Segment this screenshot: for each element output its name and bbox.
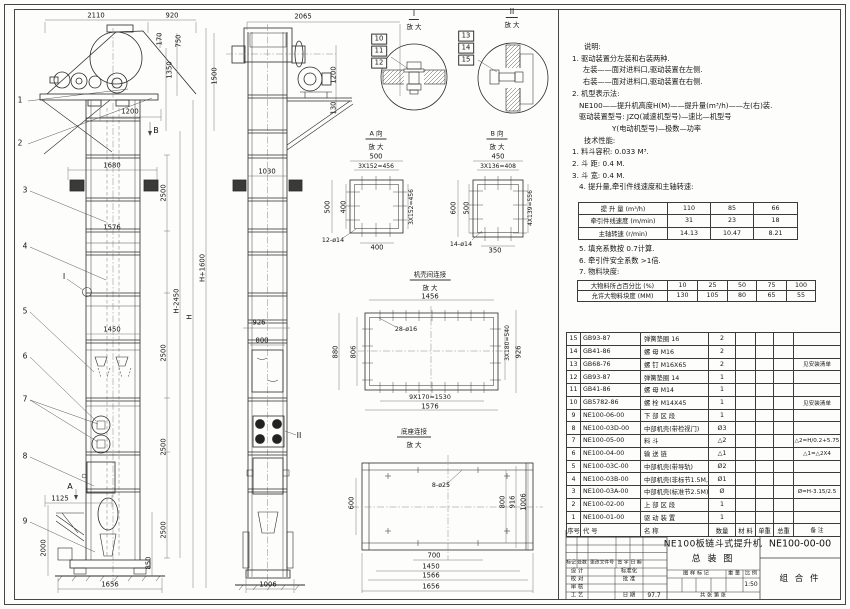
dimension-label: 标记 <box>566 562 576 567</box>
dimension-label: 1125 <box>51 496 68 503</box>
dimension-label: 880 <box>333 346 340 359</box>
drawing-title: NE100板链斗式提升机 <box>664 537 763 550</box>
table-row: 允许大物料块度 (MM)130105806555 <box>578 291 816 301</box>
section-b <box>469 176 527 241</box>
dimension-label: B <box>153 127 159 135</box>
assembly-type-label: 组 合 件 <box>780 572 821 584</box>
table-row: 5NE100-03C-00中部机壳(带导轨)Ø2 <box>567 460 841 473</box>
note-line: 右装——面对进料口,驱动装置在右侧. <box>566 76 846 88</box>
dimension-label: 806 <box>351 346 358 359</box>
balloon-5: 5 <box>23 307 28 315</box>
table-row: 6NE100-04-00输 送 链△1△1=△2X4 <box>567 447 841 460</box>
dimension-label: 放 大 <box>406 442 421 449</box>
dimension-label: 审 核 <box>571 585 584 590</box>
dimension-label: 12-ø14 <box>322 238 344 244</box>
dimension-label: 600 <box>349 497 356 510</box>
balloon-8: 8 <box>23 452 28 460</box>
note-line: Y(电动机型号)—极数—功率 <box>566 123 846 135</box>
drawing-sheet: 2110920170750135015001200B168025001576H+… <box>0 0 850 609</box>
dimension-label: 1656 <box>101 582 118 589</box>
dimension-label: 放 大 <box>422 285 437 292</box>
balloon-2: 2 <box>18 139 23 147</box>
table-row: 8NE100-03D-00中部机壳(带检视门)Ø3 <box>567 422 841 435</box>
dimension-label: 500 <box>370 154 383 161</box>
dimension-label: 400 <box>341 201 348 214</box>
dimension-label: 800 <box>500 496 507 509</box>
dimension-label: 916 <box>510 496 517 509</box>
dimension-label: 日 期 <box>623 593 636 598</box>
note-line: 左装——面对进料口,驱动装置在左侧. <box>566 64 846 76</box>
dimension-label: 926 <box>253 320 266 327</box>
drawing-view-title: 总 装 图 <box>692 552 735 565</box>
dimension-label: 2110 <box>87 13 104 20</box>
dimension-label: 4X139=556 <box>528 190 534 226</box>
title-block-date: 97.7 <box>647 593 660 599</box>
dimension-label: 350 <box>489 248 502 255</box>
note-line: 技术性能: <box>566 135 846 147</box>
note-line: NE100——提升机高度H(M)——提升量(m³/h)——左(右)装. <box>566 100 846 112</box>
dimension-label: 920 <box>166 13 179 20</box>
dimension-label: 130 <box>331 102 338 115</box>
dimension-label: 批 准 <box>623 577 636 582</box>
detail-ii-title: II <box>506 8 518 18</box>
table-row: 10GB5782-86螺 栓 M14X451见安装清单 <box>567 396 841 409</box>
dimension-label: 共 张 第 张 <box>700 593 726 598</box>
balloon-1: 1 <box>18 96 23 104</box>
base-joint-title: 底座连接 <box>397 429 431 438</box>
dimension-label: 10 <box>371 34 387 45</box>
table-row: 3NE100-03A-00中部机壳(标准节2.5M)ØØ=H-3.15/2.5 <box>567 486 841 499</box>
dimension-label: 450 <box>492 154 505 161</box>
detail-ii <box>478 43 548 113</box>
dimension-label: 校 对 <box>571 577 584 582</box>
table-row: 7NE100-05-00料 斗△2△2=H/0.2+5.75 <box>567 435 841 448</box>
dimension-label: H+1600 <box>200 254 207 282</box>
dimension-label: 1200 <box>121 109 138 116</box>
dimension-label: 重 量 <box>728 571 740 576</box>
dimension-label: 日 期 <box>630 562 641 567</box>
detail-i-title: I <box>409 10 419 20</box>
dimension-label: 170 <box>157 33 164 46</box>
drawing-scale: 1:50 <box>744 582 757 588</box>
note-line: 3. 斗 宽: 0.4 M. <box>566 170 846 182</box>
table-row: 1NE100-01-00驱 动 装 置1 <box>567 511 841 524</box>
dimension-label: 标准化 <box>621 569 637 574</box>
performance-table: 提 升 量 (m³/h)1108566牵引件线速度 (m/min)312318主… <box>578 202 798 240</box>
note-line: 4. 提升量,牵引件线速度和主轴转速: <box>566 181 846 193</box>
dimension-label: 600 <box>451 202 458 215</box>
dimension-label: 1656 <box>422 584 439 591</box>
dimension-label: 放 大 <box>489 144 504 151</box>
table-row: 12GB93-87弹簧垫圈 141 <box>567 371 841 384</box>
dimension-label: 750 <box>176 35 183 48</box>
dimension-label: 2065 <box>294 14 311 21</box>
section-a <box>343 176 407 238</box>
dimension-label: 9X170=1530 <box>409 395 451 401</box>
dimension-label: 500 <box>325 201 332 214</box>
dimension-label: 800 <box>256 338 269 345</box>
dimension-label: 14 <box>458 43 474 54</box>
note-line: 6. 牵引件安全系数 >1倍. <box>566 255 846 267</box>
note-line: 2. 斗 距: 0.4 M. <box>566 158 846 170</box>
dimension-label: 13 <box>458 31 474 42</box>
dimension-label: 设 计 <box>571 569 584 574</box>
dimension-label: 签 字 <box>617 562 628 567</box>
dimension-label: H-2450 <box>174 289 181 314</box>
dimension-label: 3X136=408 <box>480 164 516 170</box>
balloon-9: 9 <box>23 517 28 525</box>
dimension-label: 1456 <box>421 294 438 301</box>
dimension-label: 放 大 <box>504 22 519 29</box>
dimension-label: 2500 <box>161 344 168 361</box>
dimension-label: 3X152=456 <box>409 189 415 225</box>
dimension-label: 500 <box>464 202 471 215</box>
front-dims <box>45 20 214 593</box>
note-line: 5. 填充系数按 0.7计算. <box>566 243 846 255</box>
note-line: 7. 物料块度: <box>566 266 846 278</box>
notes-block-1: 说明:1. 驱动装置分左装和右装两种.左装——面对进料口,驱动装置在左侧.右装—… <box>566 41 846 193</box>
dimension-label: 1006 <box>521 493 528 510</box>
dimension-label: A <box>67 483 72 491</box>
balloon-4: 4 <box>23 242 28 250</box>
table-row: 4NE100-03B-00中部机壳(非标节1.5M,1M)Ø1 <box>567 473 841 486</box>
dimension-label: 处数 <box>577 562 587 567</box>
notes-block-2: 5. 填充系数按 0.7计算.6. 牵引件安全系数 >1倍.7. 物料块度: <box>566 243 846 278</box>
detail-i <box>381 44 447 110</box>
table-row: 14GB41-86螺 母 M162 <box>567 345 841 358</box>
dimension-label: 1350 <box>167 61 174 78</box>
dimension-label: 8-ø25 <box>432 483 450 489</box>
section-a-title: A 向 <box>365 131 386 140</box>
table-row: 提 升 量 (m³/h)1108566 <box>579 203 798 215</box>
dimension-label: 400 <box>371 245 384 252</box>
dimension-label: 1576 <box>103 225 120 232</box>
table-row: 11GB41-86螺 母 M141 <box>567 384 841 397</box>
balloon-6: 6 <box>23 352 28 360</box>
section-b-title: B 向 <box>486 131 507 140</box>
dimension-label: 11 <box>371 46 387 57</box>
dimension-label: 1576 <box>421 404 438 411</box>
table-row: 大物料所占百分比 (%)10255075100 <box>578 281 816 291</box>
dimension-label: 1450 <box>422 564 439 571</box>
dimension-label: 放 大 <box>368 144 383 151</box>
balloon-3: 3 <box>23 186 28 194</box>
dimension-label: 1200 <box>331 66 338 83</box>
dimension-label: II <box>297 432 302 440</box>
dimension-label: 2500 <box>161 521 168 538</box>
dimension-label: 1680 <box>103 163 120 170</box>
balloon-7: 7 <box>23 395 28 403</box>
dimension-label: 1500 <box>212 67 219 84</box>
dimension-label: 工 艺 <box>571 593 584 598</box>
dimension-label: 3X180=540 <box>505 325 511 361</box>
dimension-label: 12 <box>371 58 387 69</box>
dimension-label: 3X152=456 <box>358 164 394 170</box>
parts-list-table: 15GB93-87弹簧垫圈 16214GB41-86螺 母 M16213GB68… <box>566 332 841 537</box>
dimension-label: 2500 <box>161 184 168 201</box>
dimension-label: 1450 <box>103 327 120 334</box>
dimension-label: 2500 <box>161 438 168 455</box>
dimension-label: 926 <box>516 346 523 359</box>
table-row: 2NE100-02-00上 部 区 段1 <box>567 498 841 511</box>
dimension-label: 比 例 <box>745 571 757 576</box>
note-line: 2. 机型表示法: <box>566 88 846 100</box>
dimension-label: 28-ø16 <box>395 327 417 333</box>
table-row: 牵引件线速度 (m/min)312318 <box>579 215 798 227</box>
dimension-label: 15 <box>458 55 474 66</box>
dimension-label: 850 <box>146 557 153 570</box>
note-line: 驱动装置型号: JZQ(减速机型号)—速比—机型号 <box>566 111 846 123</box>
lump-size-table: 大物料所占百分比 (%)10255075100允许大物料块度 (MM)13010… <box>577 280 816 302</box>
drawing-number: NE100-00-00 <box>769 539 831 550</box>
table-row: 13GB68-76螺 钉 M16X652见安装清单 <box>567 358 841 371</box>
dimension-label: 1030 <box>258 169 275 176</box>
dimension-label: 14-ø14 <box>450 242 472 248</box>
dimension-label: 700 <box>428 553 441 560</box>
dimension-label: 1566 <box>422 573 439 580</box>
table-row: 主轴转速 (r/min)14.1310.478.21 <box>579 227 798 239</box>
front-leaders <box>28 89 152 552</box>
dimension-label: 2000 <box>41 539 48 556</box>
dimension-label: H <box>187 314 194 319</box>
note-line: 说明: <box>566 41 846 53</box>
dimension-label: 图 样 标 记 <box>683 571 709 576</box>
dimension-label: 更改文件号 <box>590 562 614 567</box>
casing-joint-title: 机壳间连接 <box>410 272 451 281</box>
dimension-label: 1006 <box>259 582 276 589</box>
note-line: 1. 驱动装置分左装和右装两种. <box>566 53 846 65</box>
note-line: 1. 料斗容积: 0.033 M³. <box>566 146 846 158</box>
side-dims <box>243 22 400 593</box>
dimension-label: I <box>63 273 65 281</box>
table-row: 9NE100-06-00下 部 区 段1 <box>567 409 841 422</box>
dimension-label: 放 大 <box>406 24 421 31</box>
table-row: 15GB93-87弹簧垫圈 162 <box>567 333 841 346</box>
casing-joint-detail <box>358 306 505 397</box>
table-row: 序号代 号名 称数量材 料单重总重备 注 <box>567 524 841 537</box>
